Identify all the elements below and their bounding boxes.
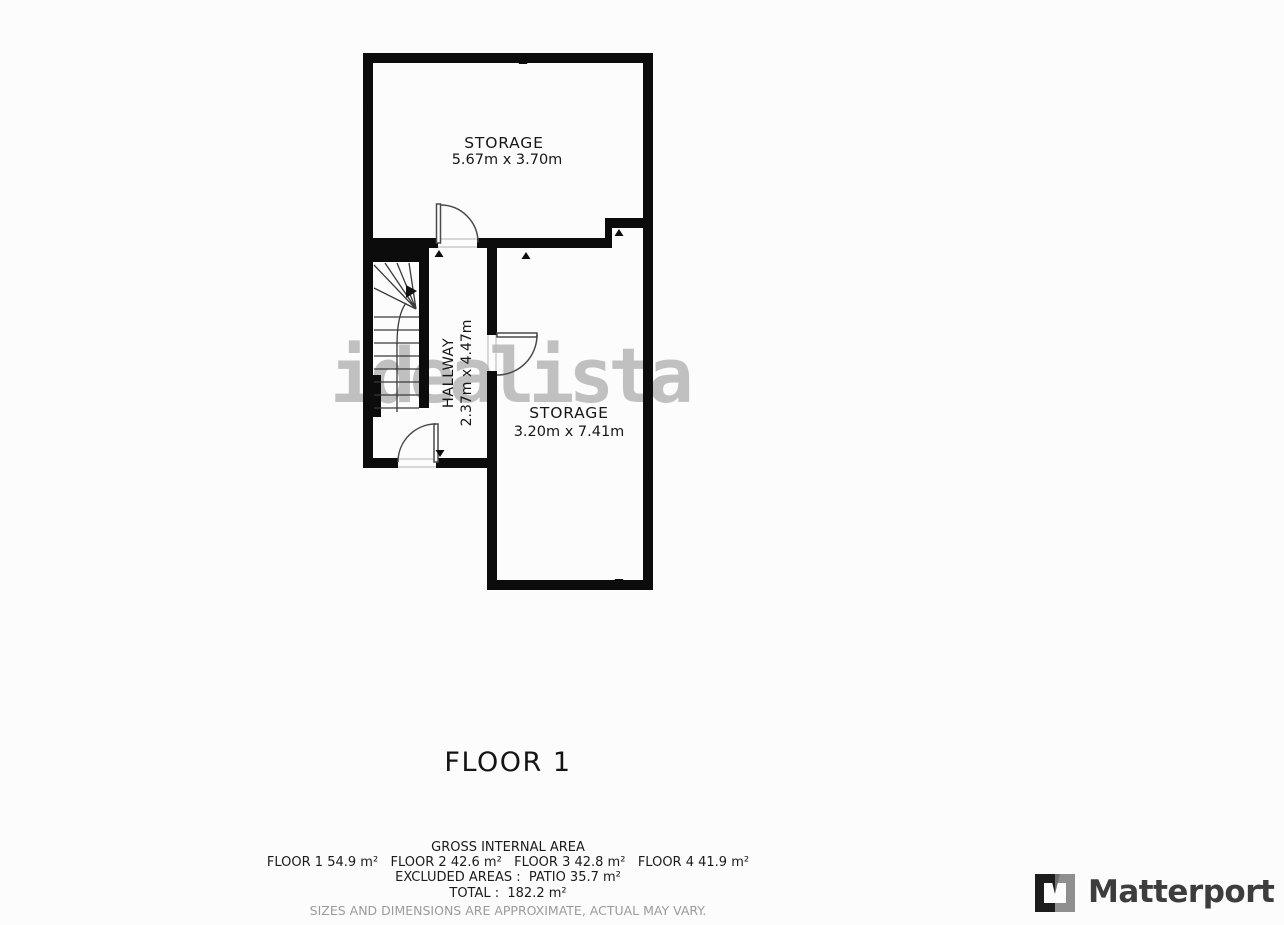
total-area-line: TOTAL : 182.2 m² (158, 886, 858, 901)
room-dims-storage-top: 5.67m x 3.70m (452, 152, 563, 168)
room-dims-hallway: 2.37m x 4.47m (459, 320, 475, 427)
floorplan-page: idealista (0, 0, 1284, 925)
floor-areas-line: FLOOR 1 54.9 m² FLOOR 2 42.6 m² FLOOR 3 … (158, 855, 858, 870)
room-dims-storage-bottom: 3.20m x 7.41m (514, 424, 625, 440)
disclaimer-text: SIZES AND DIMENSIONS ARE APPROXIMATE, AC… (158, 903, 858, 918)
excluded-areas-line: EXCLUDED AREAS : PATIO 35.7 m² (158, 870, 858, 885)
matterport-wordmark: Matterport (1088, 868, 1274, 916)
door-top-storage (437, 204, 479, 243)
floor-plan: STORAGE 5.67m x 3.70m HALLWAY 2.37m x 4.… (0, 0, 1284, 720)
room-label-storage-bottom: STORAGE (529, 404, 608, 422)
area-summary: GROSS INTERNAL AREA FLOOR 1 54.9 m² FLOO… (158, 840, 858, 918)
matterport-logo: Matterport (1031, 868, 1274, 916)
floor-title: FLOOR 1 (358, 747, 658, 778)
door-hallway-bottom (398, 424, 438, 462)
room-label-storage-top: STORAGE (464, 134, 543, 152)
gross-internal-area-heading: GROSS INTERNAL AREA (158, 840, 858, 855)
room-label-hallway: HALLWAY (441, 338, 457, 408)
matterport-m-icon (1031, 868, 1079, 916)
door-hallway-storage (497, 333, 537, 375)
stairs-direction-arrowhead (406, 285, 417, 298)
